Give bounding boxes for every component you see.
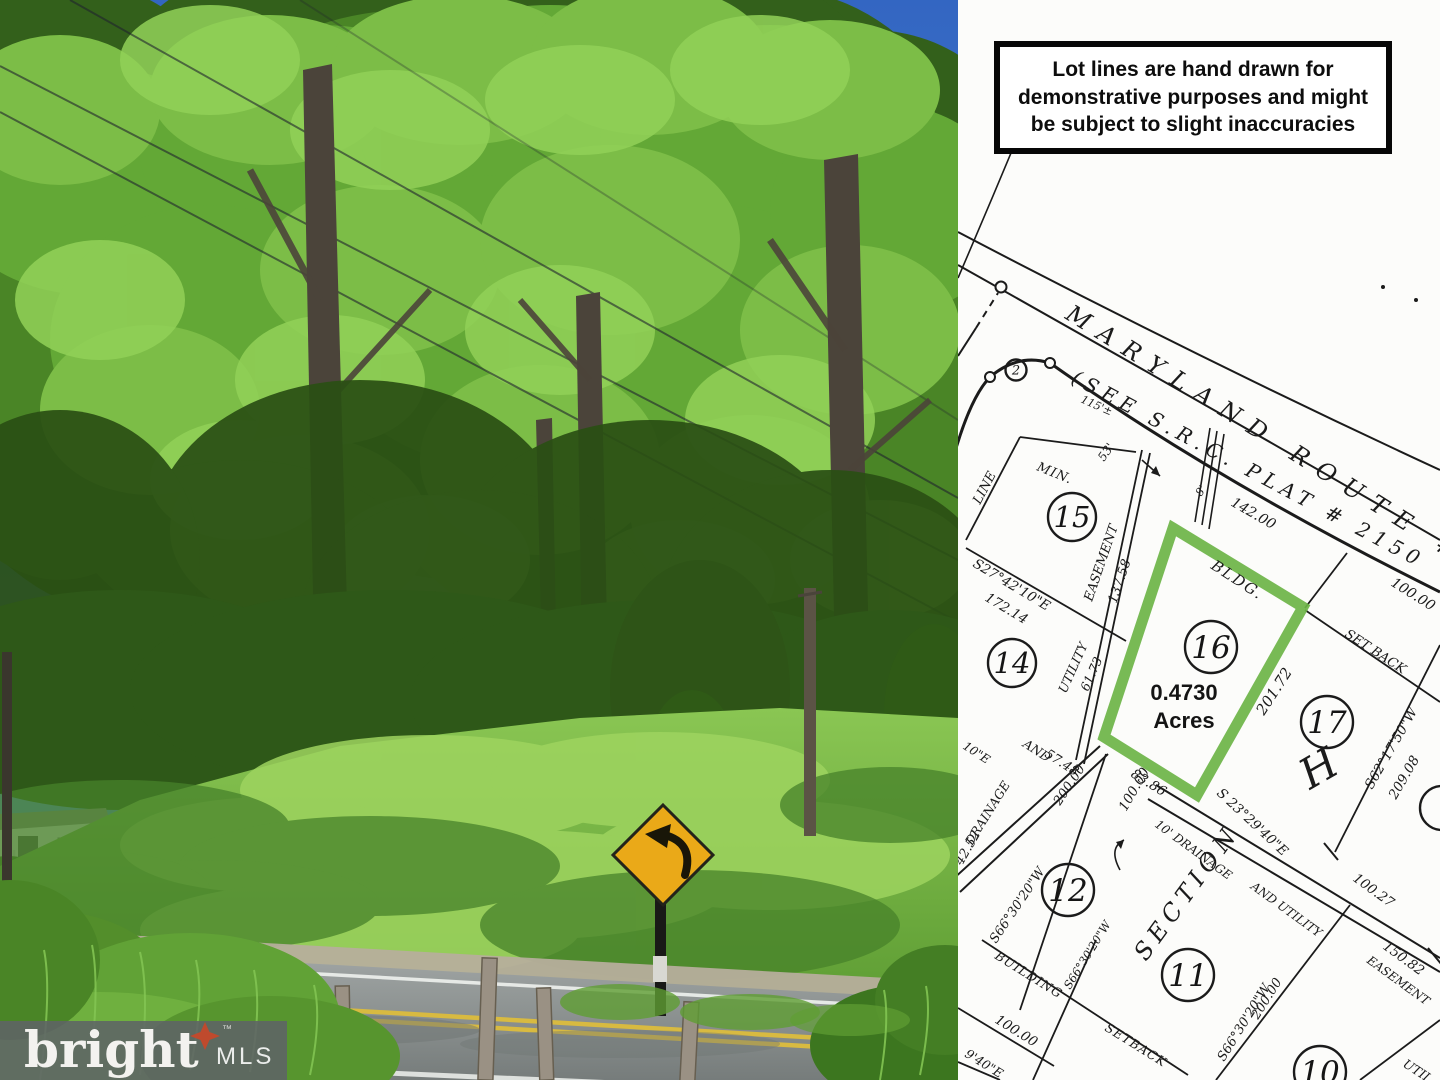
lot-number: 17 [1307, 705, 1347, 741]
lot-area-value: 0.4730 [1150, 680, 1217, 705]
plat-label: 9'40"E [962, 1046, 1006, 1080]
lot-photo-svg: bright ™ MLS [0, 0, 958, 1080]
lot-area-unit: Acres [1153, 708, 1214, 733]
plat-label: UTIL [1400, 1056, 1435, 1080]
lot-number: 16 [1191, 630, 1230, 666]
lot-number: 12 [1048, 873, 1087, 909]
survey-point [985, 372, 995, 382]
plat-label: S66°30'20"W [987, 864, 1050, 947]
survey-point [996, 282, 1007, 293]
plat-label: 100.00 [992, 1012, 1041, 1051]
plat-label: SETBACK [1102, 1020, 1169, 1070]
watermark-brand: bright [24, 1020, 199, 1079]
lot-number: 15 [1054, 500, 1091, 534]
road-lines [958, 88, 1440, 592]
disclaimer-box: Lot lines are hand drawn for demonstrati… [994, 41, 1392, 154]
brightmls-watermark: bright ™ MLS [0, 1020, 287, 1080]
plat-label: 100.00 [1388, 575, 1438, 615]
plat-label: 100.27 [1350, 870, 1398, 911]
lot-number: 2 [1011, 363, 1020, 378]
lot-photo: bright ™ MLS [0, 0, 958, 1080]
watermark-tm: ™ [222, 1024, 232, 1035]
plat-label: MIN. [1034, 459, 1075, 487]
lot-number: 14 [994, 646, 1031, 680]
plat-label: 10"E [960, 739, 993, 767]
watermark-suffix: MLS [216, 1043, 274, 1070]
plat-map: Lot lines are hand drawn for demonstrati… [958, 0, 1440, 1080]
plat-label: 137.58 [1106, 557, 1135, 605]
plat-label: 142.00 [1228, 495, 1279, 533]
plat-label: AND UTILITY [1247, 879, 1325, 941]
lot-number: 11 [1168, 958, 1207, 994]
plat-label: LINE [970, 469, 1000, 508]
listing-image: bright ™ MLS Lot lines are hand drawn fo… [0, 0, 1440, 1080]
lot-circle [1420, 786, 1440, 830]
plat-label: 53' [1095, 440, 1117, 463]
plat-label: BUILDING [992, 947, 1066, 1001]
plat-label: S66°30'20"W [1061, 917, 1115, 991]
plat-drawing: 0.4730 Acres MARYLAND ROUTE #(SEE S.R.C.… [958, 0, 1440, 1080]
plat-label: SET BACK [1342, 627, 1410, 678]
survey-point [1045, 358, 1055, 368]
lot-number: 10 [1300, 1055, 1339, 1080]
